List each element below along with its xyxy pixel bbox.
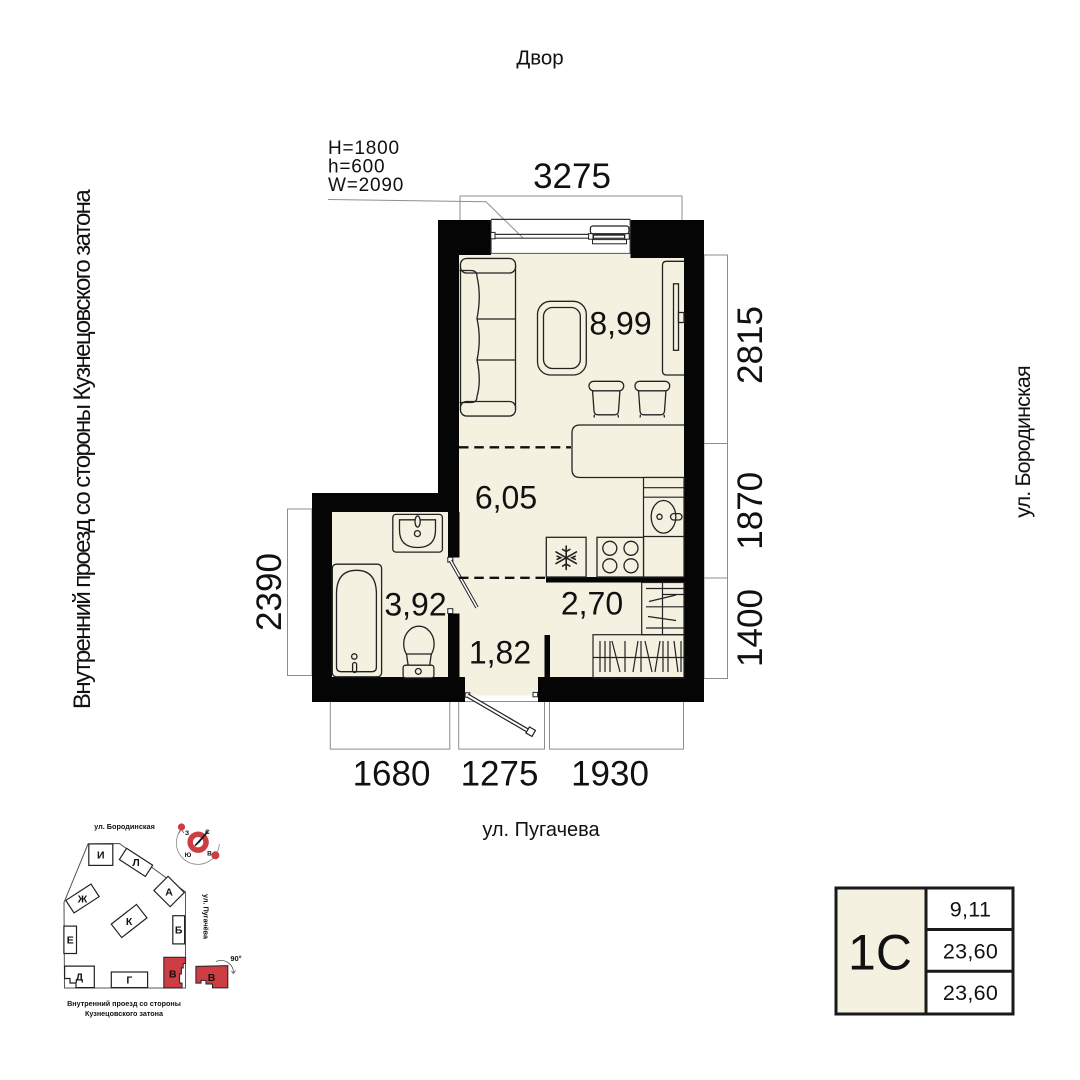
svg-text:В: В <box>169 969 177 981</box>
svg-text:Ж: Ж <box>77 893 88 905</box>
svg-text:А: А <box>165 886 173 898</box>
svg-text:W=2090: W=2090 <box>328 175 404 196</box>
svg-text:ул. Пугачёва: ул. Пугачёва <box>202 894 211 940</box>
svg-text:К: К <box>126 916 133 928</box>
svg-text:1275: 1275 <box>461 755 539 794</box>
svg-text:90°: 90° <box>230 954 241 963</box>
svg-text:Л: Л <box>132 857 139 869</box>
svg-text:2390: 2390 <box>250 553 289 631</box>
svg-text:9,11: 9,11 <box>950 898 991 922</box>
svg-text:Внутренний проезд со стороны К: Внутренний проезд со стороны Кузнецовско… <box>69 189 96 709</box>
svg-text:1930: 1930 <box>571 755 649 794</box>
svg-text:Г: Г <box>126 974 132 986</box>
svg-text:8,99: 8,99 <box>589 306 651 342</box>
svg-text:1С: 1С <box>848 925 912 981</box>
svg-text:3,92: 3,92 <box>384 587 446 623</box>
svg-text:1400: 1400 <box>731 589 770 667</box>
svg-text:Двор: Двор <box>516 47 563 70</box>
svg-text:Е: Е <box>67 935 74 947</box>
svg-text:23,60: 23,60 <box>943 981 998 1005</box>
svg-text:1,82: 1,82 <box>469 635 531 671</box>
svg-text:В: В <box>208 972 216 984</box>
svg-text:Кузнецовского затона: Кузнецовского затона <box>85 1009 164 1018</box>
svg-text:1680: 1680 <box>353 755 431 794</box>
svg-text:ул. Бородинская: ул. Бородинская <box>1011 366 1035 518</box>
svg-text:Ю: Ю <box>185 852 192 859</box>
svg-text:Б: Б <box>175 925 183 937</box>
svg-text:2815: 2815 <box>731 306 770 384</box>
svg-text:З: З <box>185 830 189 837</box>
svg-text:3275: 3275 <box>533 157 611 196</box>
svg-text:ул. Пугачева: ул. Пугачева <box>482 819 600 841</box>
svg-text:Внутренний проезд со стороны: Внутренний проезд со стороны <box>67 999 181 1008</box>
svg-text:Д: Д <box>76 972 84 984</box>
svg-text:В: В <box>207 851 212 858</box>
svg-text:23,60: 23,60 <box>943 939 998 963</box>
svg-text:1870: 1870 <box>731 472 770 550</box>
svg-text:С: С <box>205 829 210 836</box>
svg-text:И: И <box>97 849 105 861</box>
svg-text:2,70: 2,70 <box>561 586 623 622</box>
svg-text:ул. Бородинская: ул. Бородинская <box>94 822 155 831</box>
svg-text:6,05: 6,05 <box>475 480 537 516</box>
